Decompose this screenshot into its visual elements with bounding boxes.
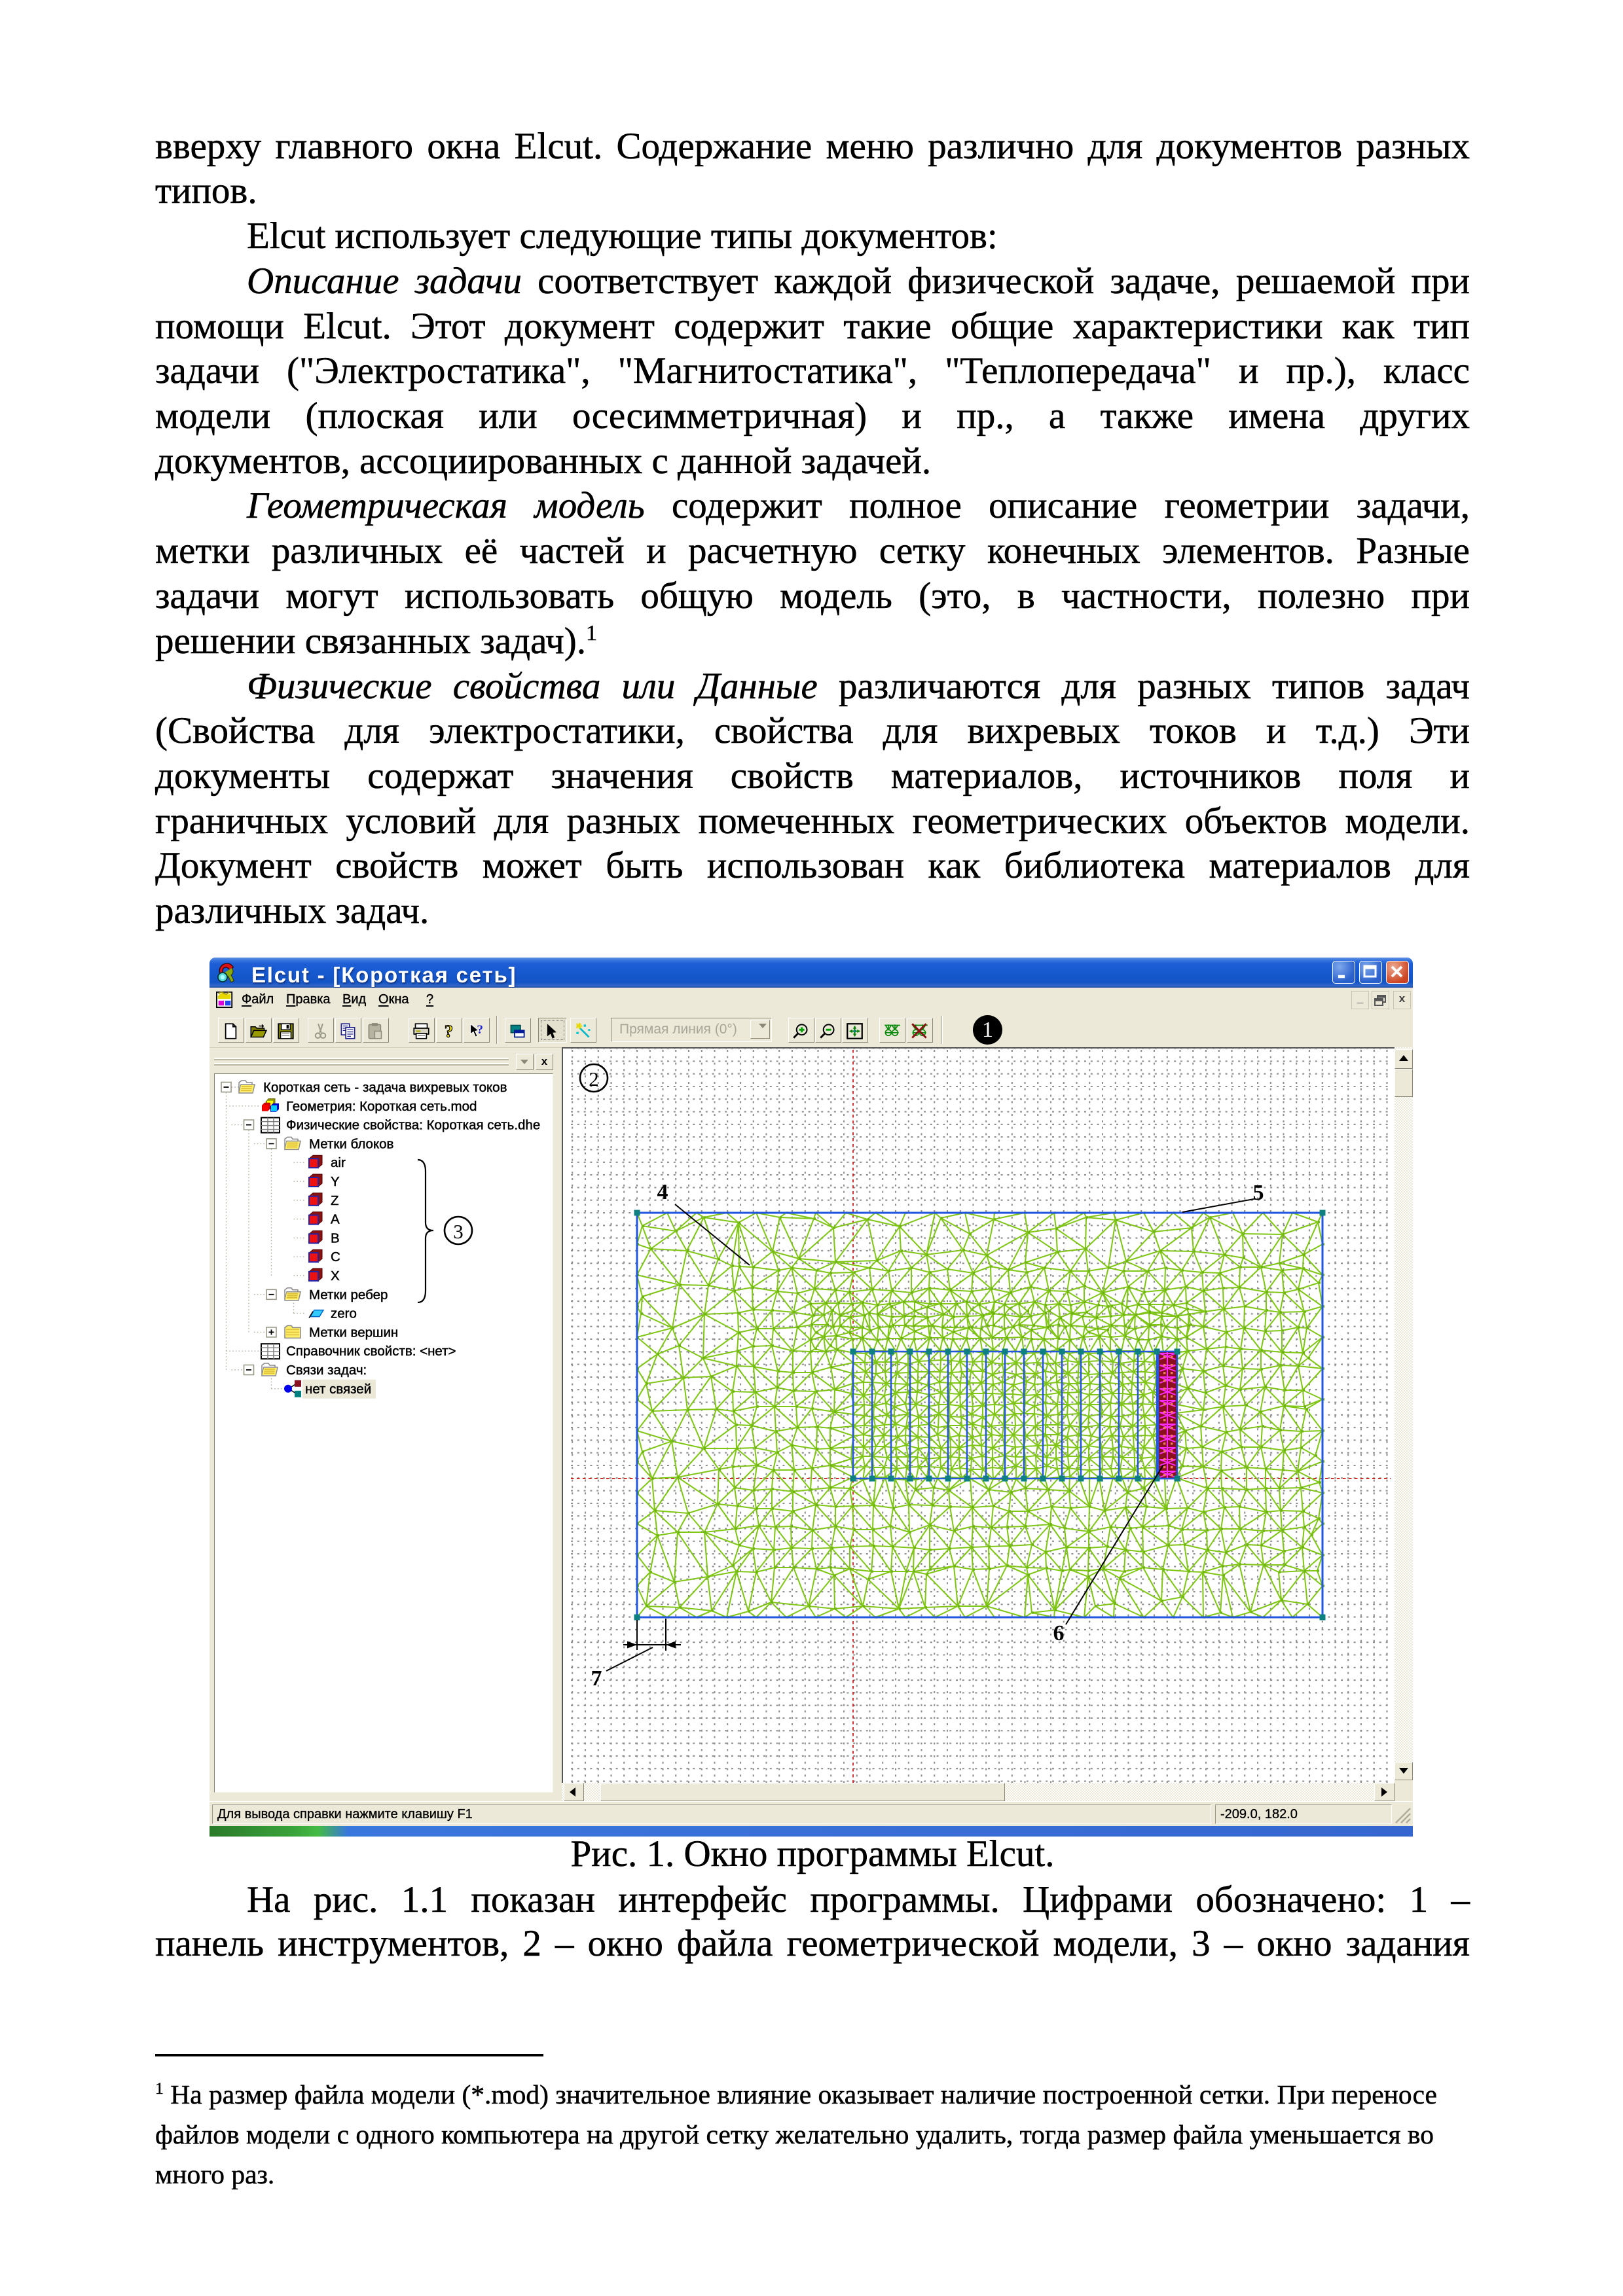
- svg-text:2: 2: [589, 1067, 599, 1090]
- svg-text:Короткая сеть - задача вихрев: Короткая сеть - задача вихревых токов: [263, 1080, 507, 1095]
- svg-text:Метки вершин: Метки вершин: [309, 1325, 398, 1340]
- svg-text:6: 6: [1053, 1621, 1065, 1645]
- svg-text:X: X: [331, 1268, 340, 1283]
- svg-text:?: ?: [445, 1022, 454, 1040]
- svg-text:A: A: [331, 1212, 340, 1227]
- svg-text:нет связей: нет связей: [305, 1382, 371, 1397]
- svg-text:3: 3: [453, 1220, 464, 1243]
- svg-text:Z: Z: [331, 1193, 339, 1208]
- svg-text:B: B: [331, 1230, 340, 1246]
- svg-text:Связи задач:: Связи задач:: [286, 1363, 367, 1378]
- svg-text:Метки блоков: Метки блоков: [309, 1136, 393, 1151]
- svg-text:Y: Y: [331, 1174, 340, 1189]
- svg-text:Физические свойства: Короткая: Физические свойства: Короткая сеть.dhe: [286, 1118, 540, 1133]
- svg-text:zero: zero: [331, 1306, 357, 1321]
- svg-text:4: 4: [657, 1180, 668, 1204]
- svg-text:Справочник свойств: <нет>: Справочник свойств: <нет>: [286, 1344, 456, 1359]
- svg-text:Геометрия: Короткая сеть.mod: Геометрия: Короткая сеть.mod: [286, 1099, 477, 1114]
- svg-text:C: C: [331, 1249, 340, 1265]
- svg-text:7: 7: [591, 1666, 602, 1691]
- svg-text:air: air: [331, 1155, 346, 1170]
- svg-text:Метки ребер: Метки ребер: [309, 1287, 388, 1302]
- svg-text:5: 5: [1253, 1181, 1264, 1205]
